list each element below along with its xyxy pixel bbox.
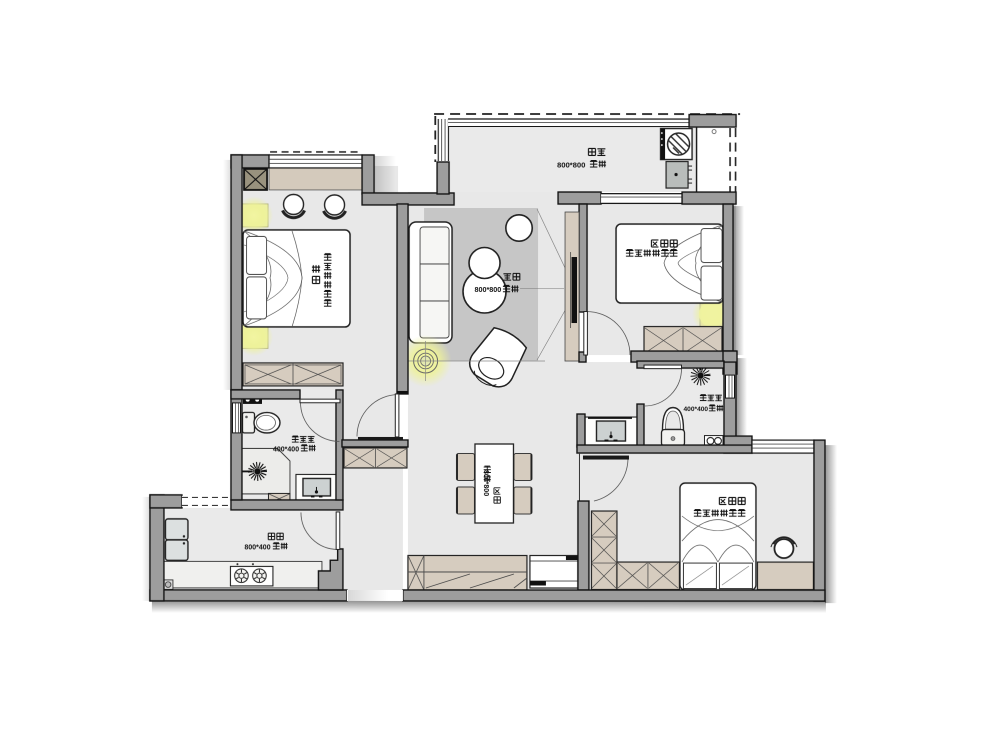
svg-text:800*800: 800*800: [475, 285, 502, 294]
svg-text:400*400: 400*400: [273, 446, 299, 453]
svg-text:800*800: 800*800: [557, 161, 585, 170]
svg-text:800*400: 800*400: [244, 544, 270, 551]
svg-text:400*400: 400*400: [683, 406, 708, 413]
svg-text:800*800: 800*800: [482, 470, 489, 496]
